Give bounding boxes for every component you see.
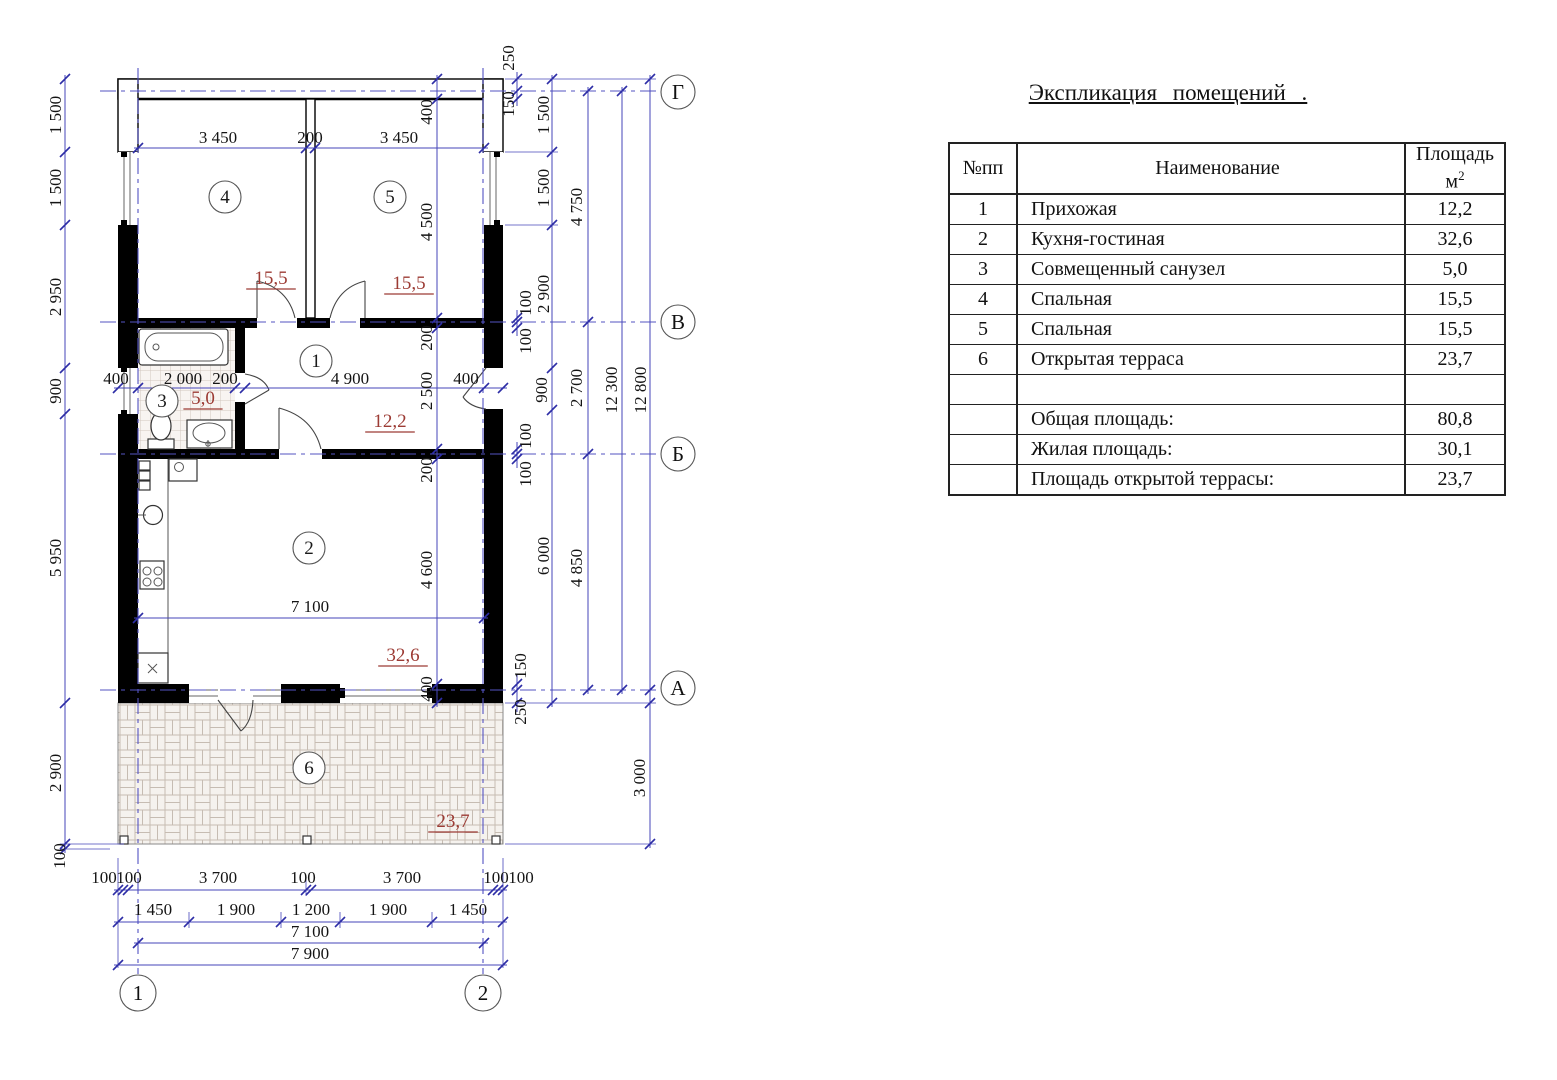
- room-number: 6: [304, 758, 314, 779]
- dim-label: 12 300: [602, 367, 621, 414]
- table-row: Площадь открытой террасы:23,7: [949, 464, 1505, 495]
- kitchen-appliances: [138, 459, 197, 683]
- dim-label: 100: [91, 868, 117, 887]
- table-row: Жилая площадь:30,1: [949, 434, 1505, 464]
- dim-label: 2 500: [417, 372, 436, 410]
- cell-name: Жилая площадь:: [1017, 434, 1405, 464]
- dim-label: 4 900: [331, 369, 369, 388]
- room-area-value: 15,5: [254, 268, 287, 289]
- dim-label: 1 500: [46, 169, 65, 207]
- cell-num: 6: [949, 344, 1017, 374]
- cell-num: 3: [949, 254, 1017, 284]
- cell-num: [949, 464, 1017, 495]
- dim-label: 2 900: [46, 754, 65, 792]
- dim-label: 1 500: [534, 96, 553, 134]
- axis-number: 2: [478, 981, 489, 1005]
- dim-label: 100: [483, 868, 509, 887]
- dim-label: 4 600: [417, 551, 436, 589]
- dim-label: 4 850: [567, 549, 586, 587]
- cell-name: Общая площадь:: [1017, 404, 1405, 434]
- col-header-name: Наименование: [1017, 143, 1405, 194]
- col-header-area-word: Площадь: [1406, 144, 1504, 165]
- dim-label: 150: [511, 653, 530, 679]
- dim-label: 1 900: [369, 900, 407, 919]
- counter-appliance: [138, 653, 168, 683]
- dim-label: 2 700: [567, 369, 586, 407]
- dim-label: 2 950: [46, 278, 65, 316]
- dim-label: 100: [290, 868, 316, 887]
- room-area-value: 12,2: [373, 411, 406, 432]
- cell-area: 5,0: [1405, 254, 1505, 284]
- bathtub: [139, 329, 228, 365]
- axis-number: 1: [133, 981, 144, 1005]
- door-kitchen: [279, 408, 321, 449]
- dim-label: 1 450: [134, 900, 172, 919]
- dim-label: 400: [417, 676, 436, 702]
- dim-label: 1 200: [292, 900, 330, 919]
- col-header-area-unit: м2: [1406, 165, 1504, 193]
- cell-name: Спальная: [1017, 284, 1405, 314]
- col-header-num: №пп: [949, 143, 1017, 194]
- cell-area: 32,6: [1405, 224, 1505, 254]
- cell-name: Прихожая: [1017, 194, 1405, 225]
- dim-label: 100: [516, 423, 535, 449]
- cell-area: 12,2: [1405, 194, 1505, 225]
- dim-label: 1 500: [46, 96, 65, 134]
- axis-letter: Б: [672, 442, 684, 466]
- dim-label: 2 000: [164, 369, 202, 388]
- dim-label: 1 900: [217, 900, 255, 919]
- dim-label: 12 800: [631, 367, 650, 414]
- dim-label: 200: [212, 369, 238, 388]
- dim-label: 3 700: [383, 868, 421, 887]
- dim-label: 100: [50, 843, 69, 869]
- cell-area: 30,1: [1405, 434, 1505, 464]
- dim-label: 3 450: [380, 128, 418, 147]
- dim-label: 100: [516, 290, 535, 316]
- dim-label: 400: [103, 369, 129, 388]
- washing-machine: [169, 459, 197, 481]
- axis-letter: Г: [672, 80, 684, 104]
- dim-label: 6 000: [534, 537, 553, 575]
- room-number: 1: [311, 351, 321, 372]
- doors: [218, 281, 503, 731]
- dim-label: 100: [116, 868, 142, 887]
- cell-area: 80,8: [1405, 404, 1505, 434]
- cell-num: [949, 404, 1017, 434]
- explication-table: №пп Наименование Площадь м2 1Прихожая12,…: [948, 142, 1506, 496]
- dim-label: 100: [516, 328, 535, 354]
- table-row: 2Кухня-гостиная32,6: [949, 224, 1505, 254]
- window-room5: [484, 152, 503, 225]
- terrace-post: [492, 836, 500, 844]
- electric-panel: [139, 461, 150, 490]
- dim-label: 3 700: [199, 868, 237, 887]
- room-number: 4: [220, 187, 230, 208]
- table-row: 4Спальная15,5: [949, 284, 1505, 314]
- terrace-post: [120, 836, 128, 844]
- door-bathroom: [245, 374, 269, 404]
- dim-label: 7 100: [291, 922, 329, 941]
- cell-name: Открытая терраса: [1017, 344, 1405, 374]
- dim-label: 250: [499, 45, 518, 71]
- dim-label: 200: [417, 325, 436, 351]
- window-room4: [118, 152, 138, 225]
- drawing-sheet: 451326 ГВБА12 15,515,55,012,232,623,7 1 …: [0, 0, 1557, 1080]
- dim-label: 4 750: [567, 188, 586, 226]
- cell-name: Кухня-гостиная: [1017, 224, 1405, 254]
- floor-plan: 451326 ГВБА12 15,515,55,012,232,623,7 1 …: [0, 0, 760, 1080]
- dim-label: 4 500: [417, 203, 436, 241]
- cell-name: Совмещенный санузел: [1017, 254, 1405, 284]
- dim-label: 100: [508, 868, 534, 887]
- room-area-value: 15,5: [392, 273, 425, 294]
- cell-name: Спальная: [1017, 314, 1405, 344]
- explication-title: Экспликация помещений .: [948, 80, 1388, 106]
- dim-label: 5 950: [46, 539, 65, 577]
- cell-area: 23,7: [1405, 464, 1505, 495]
- dim-label: 7 100: [291, 597, 329, 616]
- room-area-value: 32,6: [386, 645, 419, 666]
- dim-label: 3 000: [630, 759, 649, 797]
- table-row: 1Прихожая12,2: [949, 194, 1505, 225]
- dim-label: 400: [453, 369, 479, 388]
- axis-letter: А: [670, 676, 686, 700]
- table-row: 5Спальная15,5: [949, 314, 1505, 344]
- col-header-area: Площадь м2: [1405, 143, 1505, 194]
- axis-letter: В: [671, 310, 685, 334]
- dim-label: 100: [516, 461, 535, 487]
- cell-area: 15,5: [1405, 314, 1505, 344]
- cell-num: 2: [949, 224, 1017, 254]
- vanity-sink: [187, 420, 232, 448]
- dim-label: 250: [511, 699, 530, 725]
- room-number: 3: [157, 391, 167, 412]
- kitchen-sink: [138, 506, 163, 525]
- room-area-value: 23,7: [436, 811, 469, 832]
- dim-label: 400: [417, 99, 436, 125]
- table-row: 3Совмещенный санузел5,0: [949, 254, 1505, 284]
- dim-label: 900: [46, 378, 65, 404]
- table-row: 6Открытая терраса23,7: [949, 344, 1505, 374]
- terrace-post: [303, 836, 311, 844]
- room-area-value: 5,0: [191, 388, 215, 409]
- cell-num: [949, 434, 1017, 464]
- dim-label: 200: [297, 128, 323, 147]
- cell-num: 4: [949, 284, 1017, 314]
- dim-label: 7 900: [291, 944, 329, 963]
- room-number: 5: [385, 187, 395, 208]
- terrace-door-sidelights: [189, 684, 281, 703]
- dim-label: 2 900: [534, 275, 553, 313]
- dim-label: 3 450: [199, 128, 237, 147]
- cell-area: 15,5: [1405, 284, 1505, 314]
- stove: [140, 561, 164, 589]
- cell-area: [1405, 374, 1505, 404]
- cell-name: [1017, 374, 1405, 404]
- cell-num: 1: [949, 194, 1017, 225]
- cell-area: 23,7: [1405, 344, 1505, 374]
- table-row: [949, 374, 1505, 404]
- cell-num: [949, 374, 1017, 404]
- door-room5: [330, 281, 365, 318]
- table-row: Общая площадь:80,8: [949, 404, 1505, 434]
- dim-label: 1 500: [534, 169, 553, 207]
- cell-num: 5: [949, 314, 1017, 344]
- cell-name: Площадь открытой террасы:: [1017, 464, 1405, 495]
- dim-label: 900: [532, 377, 551, 403]
- dim-label: 1 450: [449, 900, 487, 919]
- room-number: 2: [304, 538, 314, 559]
- dim-label: 200: [417, 457, 436, 483]
- dim-label: 150: [499, 91, 518, 117]
